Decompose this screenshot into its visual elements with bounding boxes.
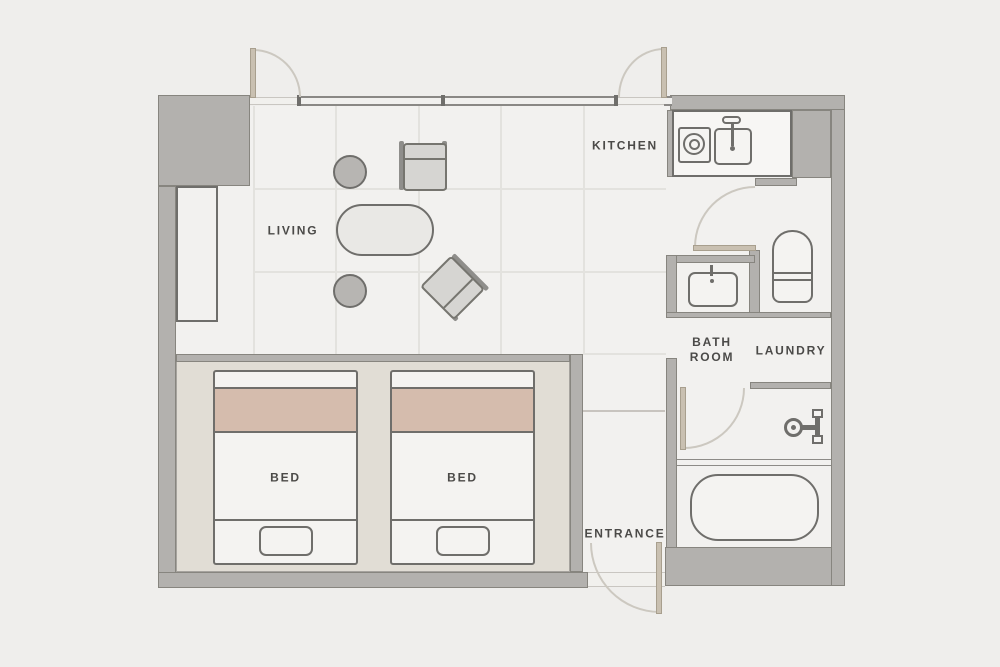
cooktop-burner-inner-icon [689,139,700,150]
toilet-seam-line [774,279,811,281]
entrance-label: ENTRANCE [584,527,665,542]
kitchen-faucet-dot-icon [730,146,735,151]
window-threshold-left [250,97,301,105]
shower-head-dot-icon [791,425,796,430]
bathtub [690,474,819,541]
stool [333,274,367,308]
laundry-label: LAUNDRY [756,344,827,359]
armchair-back-line [443,279,473,309]
wall-top-right [670,95,845,110]
wall-bath-laundry-top [666,312,831,318]
bed-label: BED [447,471,478,486]
balcony-door-right-leaf [662,48,666,97]
wall-washbasin-left [666,255,677,318]
armchair-seat [403,143,447,191]
bed: BED [213,370,358,565]
bathroom-label-line2: ROOM [690,350,735,364]
window-band [301,96,616,106]
wall-bottom [158,572,588,588]
bed-foot-cushion [259,526,313,556]
entrance-door-swing-arc [590,543,660,613]
window-band-end [664,96,672,106]
bed-blanket [215,387,356,433]
living-label: LIVING [268,224,319,239]
wall-beside-kitchen-counter [792,110,831,178]
window-mullion [441,95,445,106]
shower-rail-cap-bottom-icon [812,435,823,444]
bed-foot-line [215,519,356,521]
balcony-door-left-swing-arc [253,49,301,97]
bed-foot-line [392,519,533,521]
wall-top-left-block [158,95,250,186]
tile-grid-line [583,106,585,354]
tile-grid-line [253,106,255,354]
entrance-door-leaf [657,543,661,613]
tile-grid-line [500,106,502,354]
wall-bedroom-right [570,354,583,572]
wall-right [831,95,845,586]
shower-rail-cap-top-icon [812,409,823,418]
wall-washbasin-top [666,255,755,263]
tile-grid-line [253,188,666,190]
kitchen-faucet-stem-icon [731,123,734,146]
toilet-seam-line [774,272,811,274]
tile-grid-line [583,353,666,355]
armchair-back-line [405,158,445,160]
bed: BED [390,370,535,565]
bathroom-label-line1: BATH [692,335,732,349]
closet [176,186,218,322]
wall-bedroom-top [176,354,570,362]
bed-foot-cushion [436,526,490,556]
window-threshold-right [616,97,664,105]
washbasin-faucet-dot-icon [710,279,714,283]
floor-plan: BED BED LIVING KITCHEN BATH ROOM LAUNDRY… [0,0,1000,667]
living-table [336,204,434,256]
stool [333,155,367,189]
wall-bottom-right-block [665,547,845,586]
bathroom-label: BATH ROOM [690,335,735,365]
wall-shower-top-stub [750,382,831,389]
kitchen-label: KITCHEN [592,139,658,154]
bed-blanket [392,387,533,433]
armchair [397,141,449,190]
balcony-door-left-leaf [251,49,255,97]
wall-left [158,186,176,588]
bathroom-door-leaf [681,388,685,449]
bed-label: BED [270,471,301,486]
kitchen-counter [672,110,792,177]
washbasin [688,272,738,307]
cooktop [678,127,711,163]
toilet [772,230,813,303]
bath-partition [677,459,831,466]
washbasin-faucet-icon [710,265,713,276]
toilet-door-leaf [694,246,755,250]
entrance-step-line [583,410,665,412]
wall-stub-below-counter [755,178,797,186]
wall-corridor-right [666,358,677,548]
balcony-door-right-swing-arc [618,48,664,97]
